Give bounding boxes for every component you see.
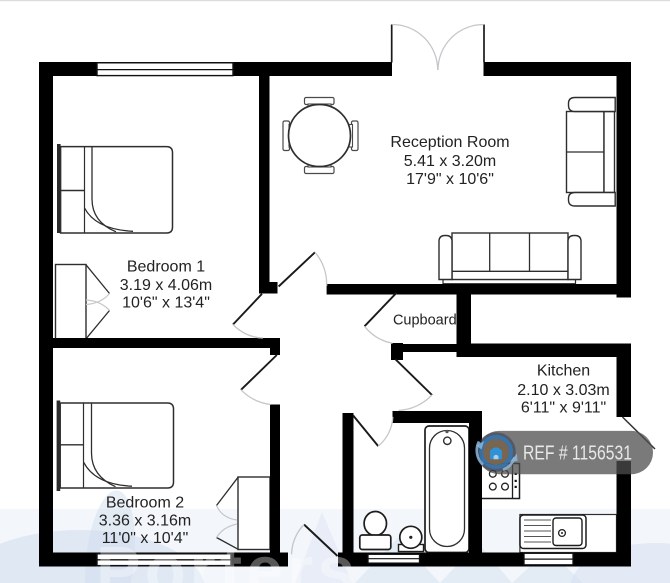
svg-text:3.19 x 4.06m: 3.19 x 4.06m [120,277,213,294]
svg-text:Bedroom 2: Bedroom 2 [106,494,184,511]
svg-text:Reception Room: Reception Room [390,134,509,151]
svg-text:5.41 x 3.20m: 5.41 x 3.20m [404,153,497,170]
svg-text:Cupboard: Cupboard [393,313,457,329]
svg-text:2.10 x 3.03m: 2.10 x 3.03m [517,382,610,399]
svg-text:10'6" x 13'4": 10'6" x 13'4" [122,295,210,312]
svg-text:Kitchen: Kitchen [537,363,590,380]
svg-text:6'11" x 9'11": 6'11" x 9'11" [521,399,606,416]
svg-text:REF # 1156531: REF # 1156531 [523,442,632,464]
svg-text:Bedroom 1: Bedroom 1 [127,259,205,276]
svg-text:Porters: Porters [96,533,359,583]
svg-text:17'9" x 10'6": 17'9" x 10'6" [406,171,494,188]
svg-text:3.36 x 3.16m: 3.36 x 3.16m [99,513,192,530]
